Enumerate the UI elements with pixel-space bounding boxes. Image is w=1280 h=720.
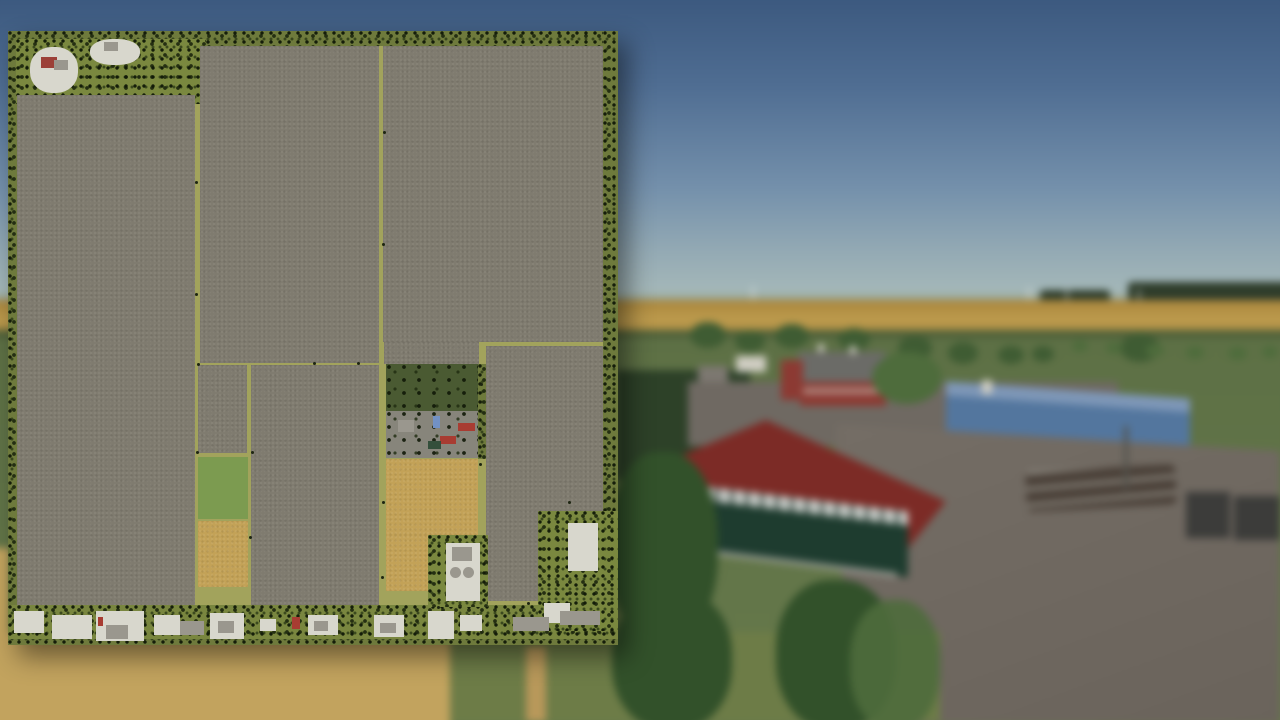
- farmstead-a-pad: [30, 47, 78, 93]
- field-northeast-extension: [384, 342, 479, 364]
- field-tan-east: [386, 459, 478, 535]
- tree-dot: [195, 293, 198, 296]
- tan-path-strip: [526, 646, 546, 720]
- tree-small-5: [1228, 347, 1247, 360]
- tree-dot: [196, 451, 199, 454]
- field-center-north: [200, 46, 379, 363]
- corner-machines: [560, 611, 600, 625]
- tree-dot: [195, 181, 198, 184]
- silo-tank-2: [463, 567, 474, 578]
- field-green-small: [198, 457, 248, 519]
- tree-row-2: [735, 330, 765, 352]
- field-west: [17, 95, 195, 607]
- tree-foreground-2: [612, 590, 732, 720]
- tree-dot: [357, 362, 360, 365]
- wind-turbine-4: [1138, 289, 1140, 300]
- corner-pad-1: [568, 523, 598, 571]
- tree-large-over-yard: [872, 352, 942, 404]
- field-tan-small: [198, 521, 248, 587]
- farmstead-a-barn: [54, 60, 68, 70]
- wind-turbine-2: [1028, 287, 1030, 300]
- tree-dot: [527, 602, 530, 605]
- tree-dot: [383, 131, 386, 134]
- bottom-pad-2: [52, 615, 92, 639]
- bottom-red-container: [292, 617, 300, 629]
- wind-turbine-1: [752, 286, 754, 301]
- utility-pole: [1124, 426, 1128, 490]
- silo-building: [452, 547, 472, 561]
- farmstead-b-house: [104, 42, 118, 51]
- bottom-pad-4: [154, 615, 180, 635]
- tree-dot: [382, 243, 385, 246]
- tree-row-7: [998, 346, 1024, 364]
- tree-small-1: [1072, 340, 1088, 352]
- game-screenshot-stage: [0, 0, 1280, 720]
- tree-small-6: [1262, 346, 1278, 358]
- field-center-south: [251, 365, 379, 608]
- tree-row-6: [948, 342, 978, 364]
- tree-row-8: [1032, 346, 1054, 362]
- tree-small-2: [1106, 342, 1122, 354]
- farmyard-red-container-1: [458, 423, 475, 431]
- field-center-strip-west: [198, 365, 247, 453]
- pallet-stack-1: [1186, 492, 1230, 538]
- tree-row-3: [775, 324, 809, 348]
- tree-dot: [197, 363, 200, 366]
- bottom-pad-8-roof: [380, 623, 396, 633]
- red-barn-vent-2: [850, 346, 856, 354]
- bottom-pad-7-roof: [314, 621, 328, 631]
- bottom-pad-1: [14, 611, 44, 633]
- tree-small-4: [1186, 346, 1204, 359]
- tree-foreground-4: [850, 600, 940, 720]
- silo-tank-1: [450, 567, 461, 578]
- tree-dot: [251, 451, 254, 454]
- field-tan-south: [0, 632, 450, 720]
- machine-hall-vent: [982, 380, 992, 394]
- field-tan-east-extension: [386, 535, 430, 591]
- minimap-overlay: [8, 31, 618, 645]
- red-barn-vent-1: [818, 344, 824, 352]
- farmyard-red-container-2: [440, 436, 456, 444]
- farmyard-blue-container: [433, 416, 440, 428]
- tree-dot: [479, 463, 482, 466]
- bottom-machine-1: [180, 621, 204, 635]
- tree-dot: [568, 501, 571, 504]
- tree-dot: [382, 501, 385, 504]
- farmyard: [386, 411, 478, 458]
- tree-row-1: [690, 322, 726, 348]
- field-northeast: [383, 46, 603, 342]
- tree-dot: [338, 608, 341, 611]
- bottom-pad-3-red: [98, 617, 103, 626]
- farmyard-green-trailer: [428, 441, 441, 449]
- bottom-pad-6: [260, 619, 276, 631]
- bottom-pad-3-roof: [106, 625, 128, 639]
- bottom-pad-10: [460, 615, 482, 631]
- tree-dot: [480, 383, 483, 386]
- red-barn-windows: [803, 388, 883, 394]
- shed-white: [736, 356, 766, 372]
- hedgerow-east: [478, 364, 486, 459]
- bunker-silo: [1025, 464, 1177, 512]
- tree-dot: [313, 362, 316, 365]
- tree-dot: [249, 536, 252, 539]
- bottom-pad-5-roof: [218, 621, 234, 633]
- field-dark-green: [386, 364, 478, 411]
- bottom-machine-2: [513, 617, 549, 631]
- wind-turbine-3: [1066, 288, 1068, 300]
- pallet-stack-2: [1234, 496, 1280, 540]
- farmyard-shed-roof: [398, 420, 414, 432]
- tree-small-3: [1146, 344, 1164, 357]
- bottom-pad-9: [428, 611, 454, 639]
- machine-shed-small: [698, 366, 728, 382]
- tree-dot: [381, 576, 384, 579]
- tree-dot: [437, 606, 440, 609]
